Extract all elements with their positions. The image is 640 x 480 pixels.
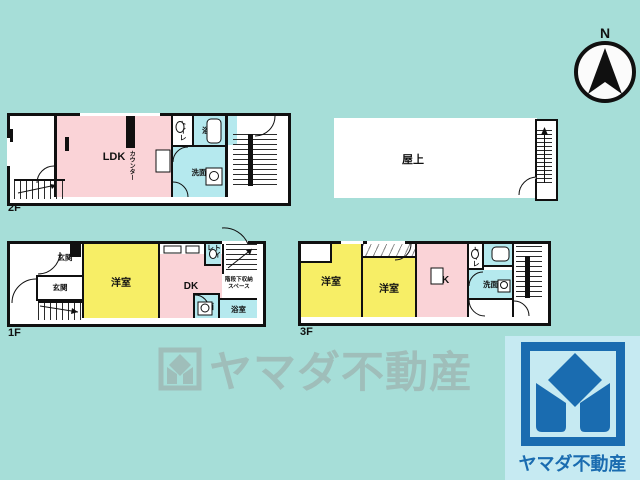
watermark-logo-icon — [158, 347, 202, 391]
room-western-3f-right-label: 洋室 — [379, 280, 399, 295]
compass-n-label: N — [572, 26, 638, 40]
room-toilet-3f: トイレ — [469, 244, 482, 268]
room-wash-1f-label: 洗面 — [199, 301, 214, 312]
entrance-lower-label: 玄関 — [40, 282, 80, 293]
roof-staircase — [535, 119, 558, 201]
room-toilet-2f-label: トイレ — [179, 120, 186, 141]
pillar — [70, 244, 81, 257]
room-toilet-1f: トイレ — [206, 244, 221, 264]
compass-north: N — [572, 26, 638, 40]
wall — [36, 275, 38, 301]
floor-plan-3f: 洋室 洋室 DK トイレ 浴室 洗面 — [298, 241, 551, 326]
counter-label: カウンター — [125, 150, 136, 182]
north-arrow-icon — [574, 41, 636, 103]
room-bath-2f: 浴室 — [194, 116, 237, 145]
wall — [225, 116, 228, 197]
room-toilet-2f: トイレ — [173, 116, 192, 145]
window — [80, 113, 160, 116]
room-dk-1f-label: DK — [184, 281, 198, 292]
roof-label: 屋上 — [402, 151, 424, 167]
wall — [484, 265, 512, 267]
room-bath-2f-label: 浴室 — [202, 125, 217, 136]
staircase-2f — [233, 134, 277, 186]
room-bath-1f-label: 浴室 — [231, 304, 246, 315]
roof-stair-treads — [537, 130, 552, 186]
room-wash-2f-label: 洗面 — [192, 167, 207, 178]
pillar — [10, 129, 13, 142]
wall — [469, 298, 514, 300]
room-bath-3f: 浴室 — [484, 244, 514, 265]
floor1-tag: 1F — [8, 327, 21, 339]
wall — [222, 244, 224, 274]
floor-plan-roof: 屋上 — [334, 118, 537, 198]
floor-plan-2f: LDK カウンター トイレ 浴室 洗面 — [7, 113, 291, 206]
room-bath-1f: 浴室 — [220, 300, 257, 318]
floorplan-image: N LDK カウンター トイレ 浴室 洗面 — [0, 0, 640, 480]
room-wash-3f-label: 洗面 — [483, 279, 498, 290]
wall — [204, 244, 206, 266]
floor3-tag: 3F — [300, 326, 313, 338]
closet — [301, 244, 330, 261]
counter-wall — [126, 116, 135, 148]
room-ldk-label: LDK — [103, 151, 126, 163]
room-ldk: LDK — [57, 116, 171, 197]
staircase-rail — [248, 134, 253, 186]
watermark-text: ヤマダ不動産 — [209, 338, 473, 400]
window — [341, 241, 363, 244]
room-bath-3f-label: 浴室 — [493, 249, 508, 260]
staircase-1f-right — [226, 244, 257, 272]
brand-name: ヤマダ不動産 — [505, 450, 640, 476]
staircase-2f-lower — [14, 179, 65, 199]
room-western-3f-right: 洋室 — [363, 258, 415, 317]
window — [7, 138, 10, 166]
room-dk-3f-label: DK — [435, 275, 449, 286]
room-wash-1f: 洗面 — [195, 295, 218, 318]
floor2-tag: 2F — [8, 202, 21, 214]
room-toilet-1f-label: トイレ — [207, 244, 221, 264]
room-western-1f: 洋室 — [84, 244, 158, 318]
door-opening — [222, 241, 248, 244]
staircase-rail — [525, 256, 530, 298]
wall — [206, 264, 221, 266]
staircase-1f — [38, 301, 85, 320]
room-wash-2f: 洗面 — [173, 147, 225, 197]
room-western-1f-label: 洋室 — [111, 274, 131, 289]
room-dk-3f: DK — [417, 244, 467, 317]
pillar — [65, 137, 69, 151]
room-toilet-3f-label: トイレ — [472, 246, 479, 267]
window — [367, 241, 405, 244]
wall — [301, 261, 332, 263]
brand-logo-icon — [521, 342, 625, 446]
brand-panel: ヤマダ不動産 — [505, 336, 640, 480]
floor-plan-1f: 玄関 玄関 洋室 DK トイレ 階段下収納スペース 洗面 浴室 — [7, 241, 266, 327]
wall — [512, 244, 514, 317]
watermark: ヤマダ不動産 — [158, 338, 473, 400]
room-wash-3f: 洗面 — [469, 270, 512, 298]
closet-strip — [363, 244, 415, 256]
under-stair-storage-label: 階段下収納スペース — [224, 276, 254, 289]
room-western-3f-left-label: 洋室 — [321, 273, 341, 288]
